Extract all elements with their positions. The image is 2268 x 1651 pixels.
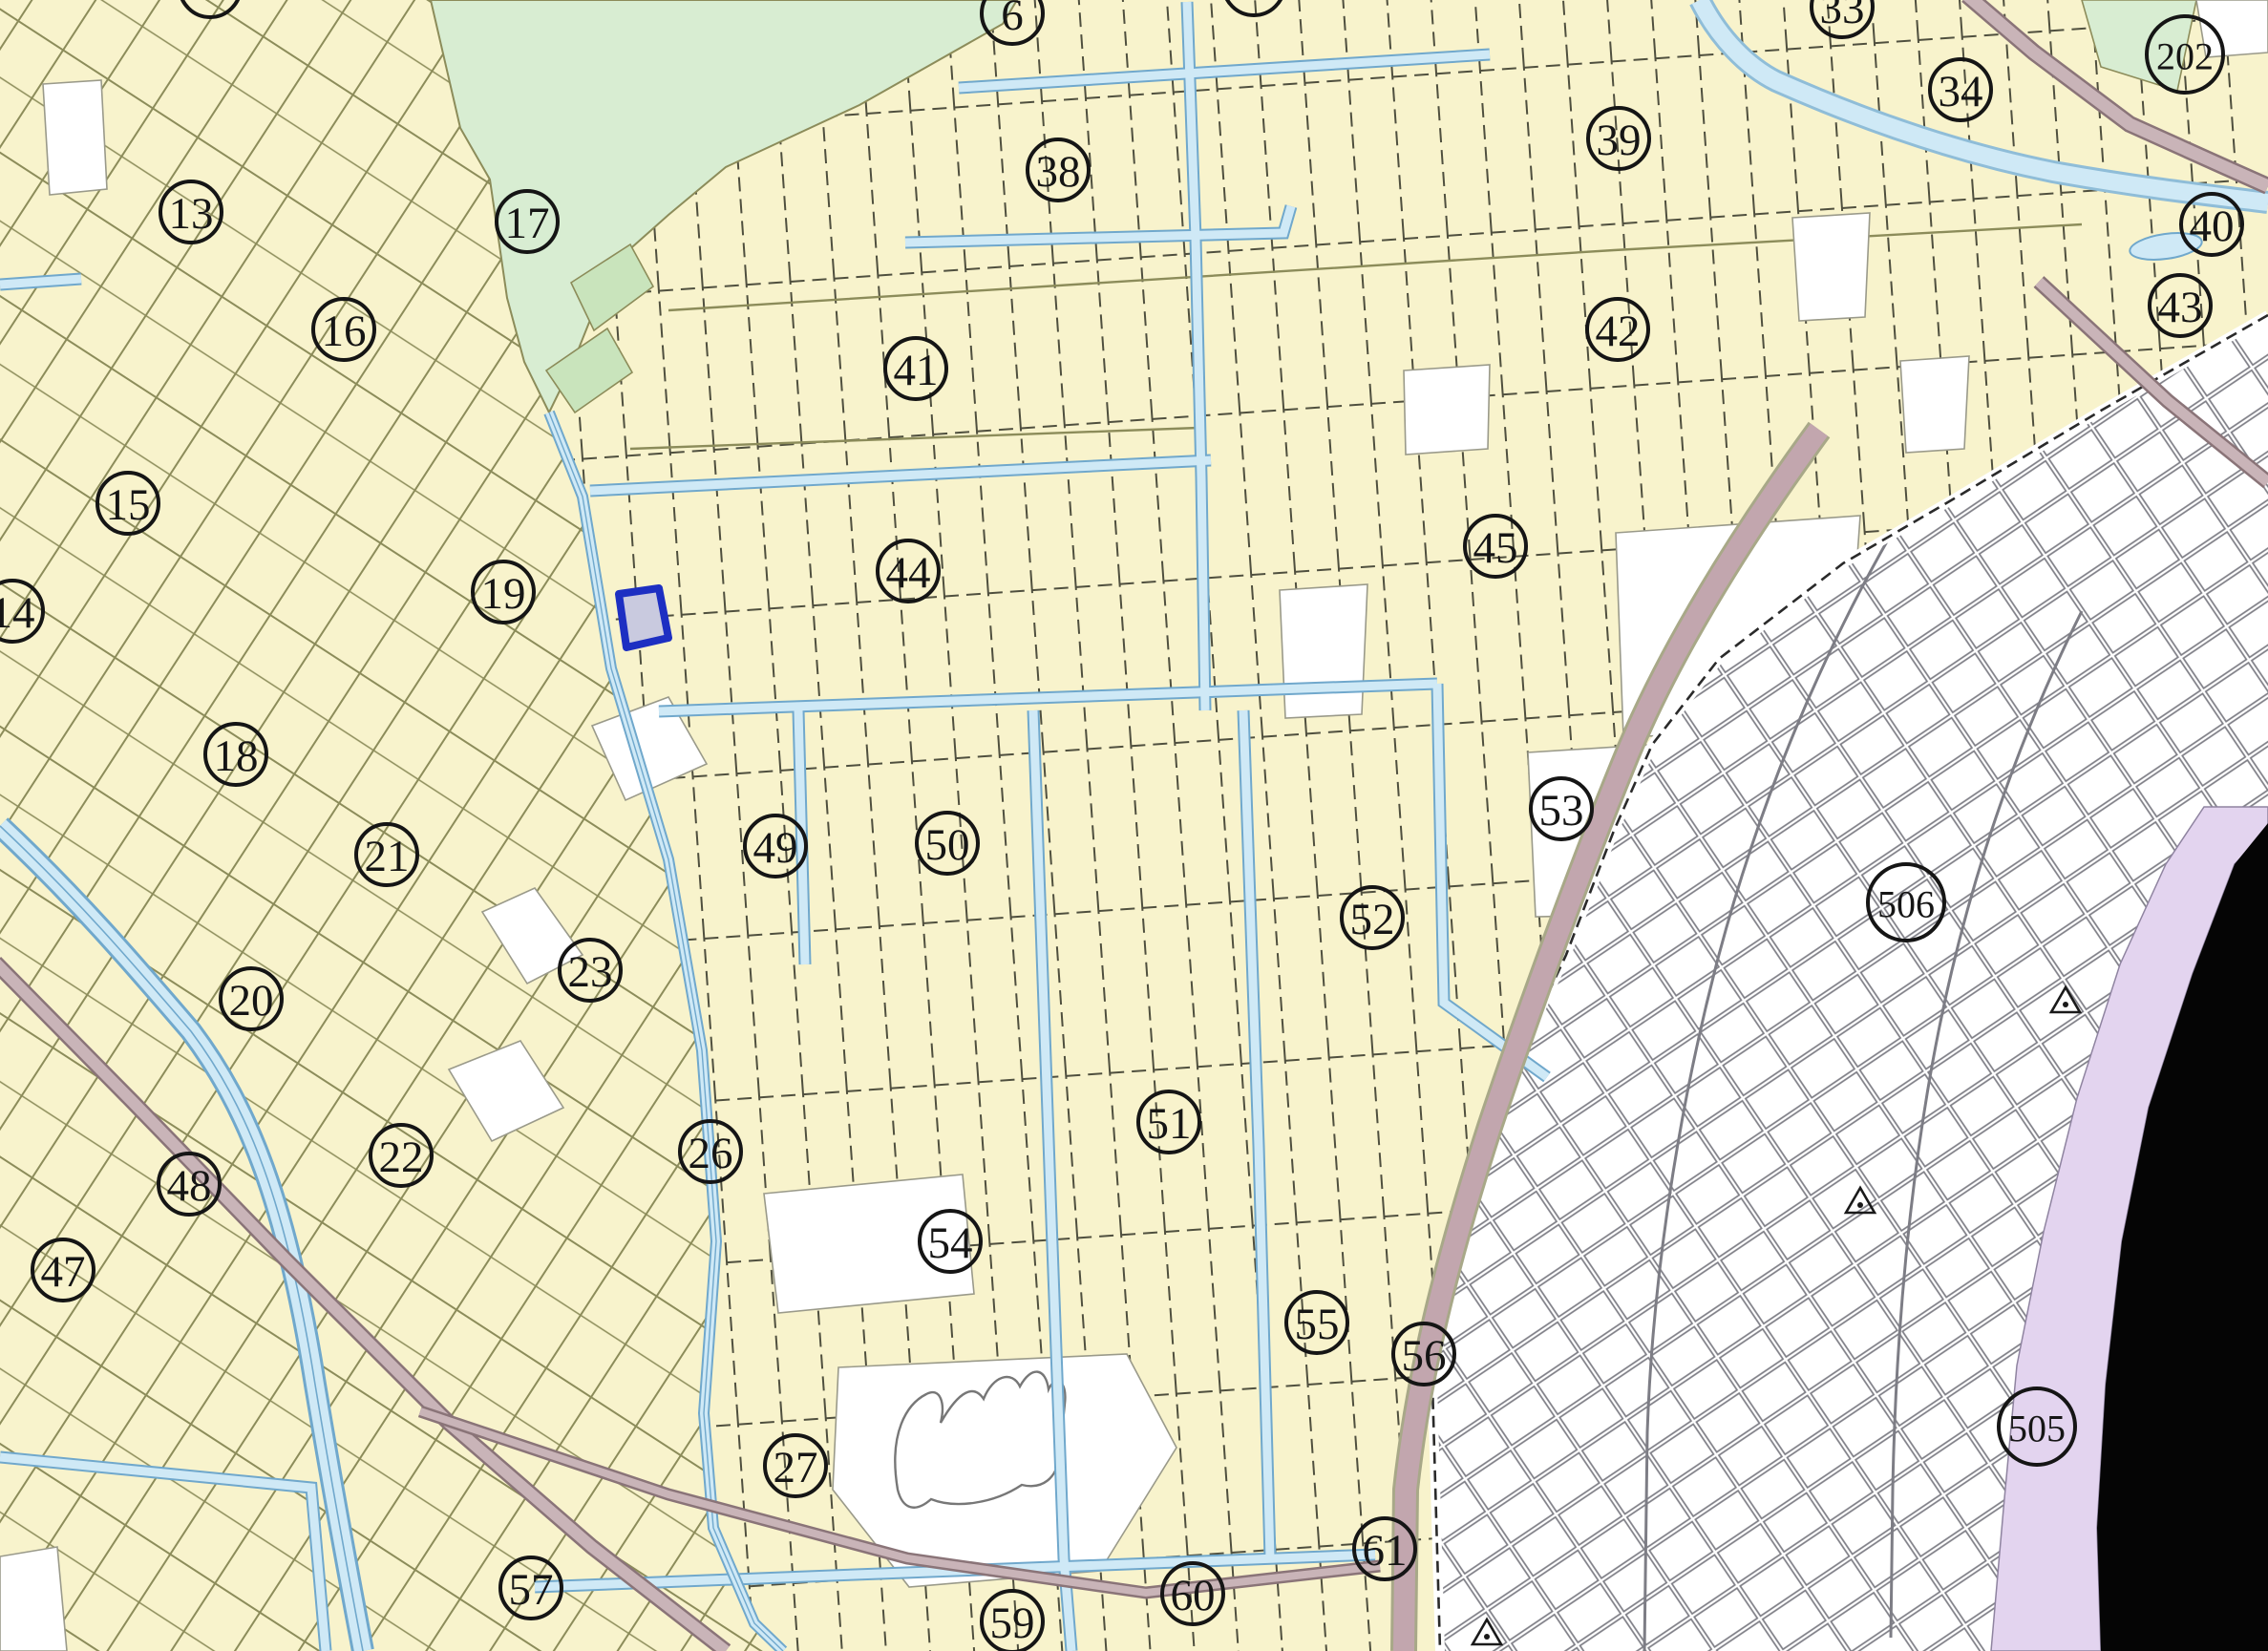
- svg-text:44: 44: [886, 548, 931, 598]
- svg-text:60: 60: [1171, 1571, 1216, 1620]
- svg-text:41: 41: [894, 346, 939, 395]
- svg-text:20: 20: [229, 976, 274, 1026]
- parcel-block-label-49[interactable]: 49: [745, 815, 806, 877]
- parcel-block-label-57[interactable]: 57: [500, 1557, 562, 1619]
- svg-text:54: 54: [928, 1218, 973, 1268]
- svg-text:49: 49: [753, 823, 798, 873]
- parcel-block-label-38[interactable]: 38: [1028, 139, 1089, 201]
- parcel-block-label-23[interactable]: 23: [560, 940, 621, 1001]
- parcel-block-label-51[interactable]: 51: [1138, 1091, 1199, 1153]
- svg-text:13: 13: [169, 189, 214, 239]
- parcel-block-label-18[interactable]: 18: [205, 724, 266, 785]
- parcel-block-label-50[interactable]: 50: [917, 813, 978, 874]
- parcel-block-label-44[interactable]: 44: [878, 540, 939, 602]
- svg-text:34: 34: [1939, 67, 1983, 116]
- parcel-block-label-61[interactable]: 61: [1354, 1518, 1415, 1579]
- parcel-block-label-42[interactable]: 42: [1587, 299, 1648, 360]
- parcel-block-label-6[interactable]: 6: [982, 0, 1043, 44]
- svg-text:55: 55: [1295, 1300, 1340, 1349]
- svg-text:53: 53: [1539, 786, 1584, 836]
- svg-text:45: 45: [1473, 523, 1518, 573]
- svg-text:17: 17: [505, 199, 550, 248]
- parcel-block-label-505[interactable]: 505: [1999, 1388, 2075, 1465]
- parcel-block-label-53[interactable]: 53: [1531, 778, 1592, 839]
- parcel-block-label-13[interactable]: 13: [160, 181, 222, 243]
- svg-text:18: 18: [214, 731, 259, 781]
- parcel-block-label-47[interactable]: 47: [32, 1239, 94, 1301]
- svg-text:59: 59: [990, 1598, 1035, 1648]
- parcel-block-label-33[interactable]: 33: [1812, 0, 1873, 37]
- parcel-block-label-60[interactable]: 60: [1162, 1563, 1223, 1624]
- parcel-block-label-19[interactable]: 19: [473, 561, 534, 623]
- svg-text:50: 50: [925, 820, 970, 870]
- parcel-block-label-39[interactable]: 39: [1588, 108, 1649, 169]
- parcel-block-label-59[interactable]: 59: [982, 1591, 1043, 1651]
- parcel-block-label-56[interactable]: 56: [1393, 1323, 1454, 1385]
- parcel-block-label-52[interactable]: 52: [1342, 887, 1403, 948]
- parcel-block-label-55[interactable]: 55: [1286, 1292, 1347, 1353]
- selected-parcel[interactable]: [619, 588, 668, 647]
- svg-text:202: 202: [2156, 35, 2214, 78]
- svg-text:21: 21: [365, 832, 410, 881]
- parcel-block-label-54[interactable]: 54: [920, 1211, 981, 1272]
- parcel-block-label-16[interactable]: 16: [313, 299, 374, 360]
- parcel-block-label-45[interactable]: 45: [1465, 516, 1526, 577]
- svg-text:26: 26: [689, 1129, 733, 1178]
- parcel-block-label-40[interactable]: 40: [2181, 194, 2242, 255]
- parcel-block-label-21[interactable]: 21: [356, 824, 417, 885]
- svg-text:14: 14: [0, 588, 35, 638]
- parcel-block-label-48[interactable]: 48: [159, 1154, 220, 1215]
- parcel-block-label-506[interactable]: 506: [1868, 864, 1944, 941]
- svg-text:42: 42: [1596, 307, 1641, 356]
- svg-text:51: 51: [1147, 1099, 1192, 1149]
- svg-text:57: 57: [509, 1565, 554, 1615]
- svg-text:38: 38: [1036, 147, 1081, 197]
- svg-text:506: 506: [1877, 883, 1935, 926]
- svg-text:27: 27: [774, 1443, 818, 1492]
- svg-text:22: 22: [379, 1132, 424, 1182]
- svg-text:39: 39: [1597, 116, 1642, 165]
- parcel-block-label-15[interactable]: 15: [97, 473, 159, 534]
- svg-text:43: 43: [2158, 283, 2203, 332]
- svg-text:33: 33: [1820, 0, 1865, 33]
- cadastral-map: 6131617383941424445333420240431514191821…: [0, 0, 2268, 1651]
- svg-text:56: 56: [1402, 1331, 1447, 1381]
- svg-text:505: 505: [2008, 1408, 2066, 1450]
- parcel-block-label-26[interactable]: 26: [680, 1121, 741, 1182]
- svg-text:15: 15: [106, 480, 151, 530]
- parcel-block-label-27[interactable]: 27: [765, 1435, 826, 1496]
- svg-text:19: 19: [481, 569, 526, 619]
- svg-text:40: 40: [2190, 201, 2235, 251]
- svg-text:23: 23: [568, 947, 613, 997]
- parcel-block-label-22[interactable]: 22: [371, 1125, 432, 1186]
- parcel-block-label-43[interactable]: 43: [2150, 275, 2211, 336]
- parcel-block-label-34[interactable]: 34: [1930, 59, 1991, 120]
- parcel-block-label-20[interactable]: 20: [221, 968, 282, 1029]
- svg-text:47: 47: [41, 1247, 86, 1297]
- svg-text:6: 6: [1001, 0, 1024, 40]
- svg-text:52: 52: [1350, 895, 1395, 944]
- parcel-block-label-202[interactable]: 202: [2147, 16, 2223, 93]
- map-canvas[interactable]: 6131617383941424445333420240431514191821…: [0, 0, 2268, 1651]
- svg-text:48: 48: [167, 1161, 212, 1211]
- parcel-block-label-17[interactable]: 17: [497, 191, 558, 252]
- parcel-block-label-41[interactable]: 41: [885, 338, 946, 399]
- parcel-block-label-14[interactable]: 14: [0, 581, 43, 642]
- svg-text:16: 16: [322, 307, 367, 356]
- svg-text:61: 61: [1363, 1526, 1408, 1576]
